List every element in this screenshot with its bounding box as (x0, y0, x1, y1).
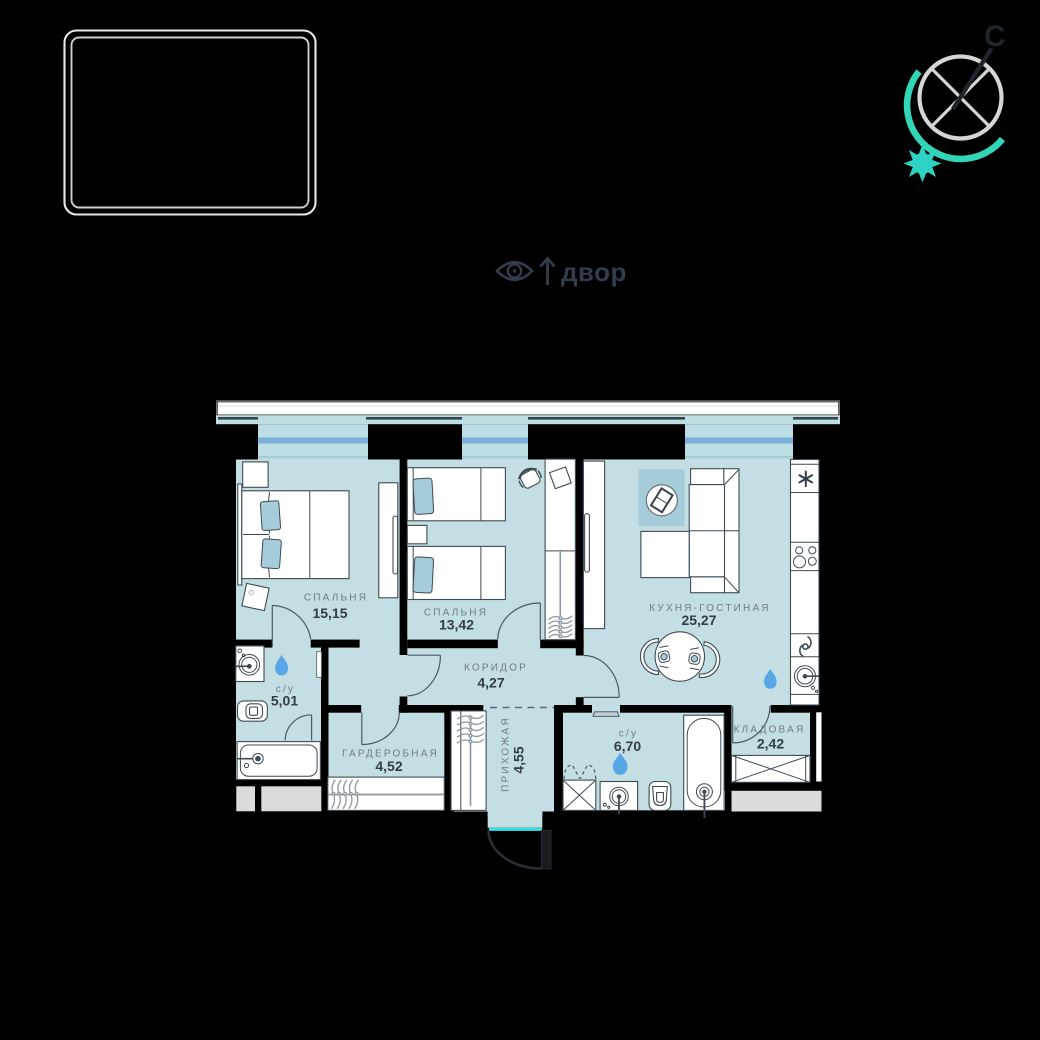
svg-text:2,42: 2,42 (757, 736, 784, 752)
svg-text:КЛАДОВАЯ: КЛАДОВАЯ (734, 725, 806, 736)
svg-text:13,42: 13,42 (439, 617, 474, 633)
svg-text:4,27: 4,27 (477, 675, 504, 691)
svg-text:СПАЛЬНЯ: СПАЛЬНЯ (304, 593, 368, 604)
svg-text:С: С (984, 20, 1006, 53)
svg-text:КОРИДОР: КОРИДОР (464, 663, 528, 674)
svg-text:5,01: 5,01 (271, 693, 298, 709)
svg-text:15,15: 15,15 (312, 605, 347, 621)
svg-text:4,55: 4,55 (511, 746, 527, 773)
svg-text:25,27: 25,27 (681, 612, 716, 628)
svg-text:4,52: 4,52 (375, 758, 402, 774)
svg-text:6,70: 6,70 (614, 738, 641, 754)
svg-text:двор: двор (561, 257, 627, 287)
